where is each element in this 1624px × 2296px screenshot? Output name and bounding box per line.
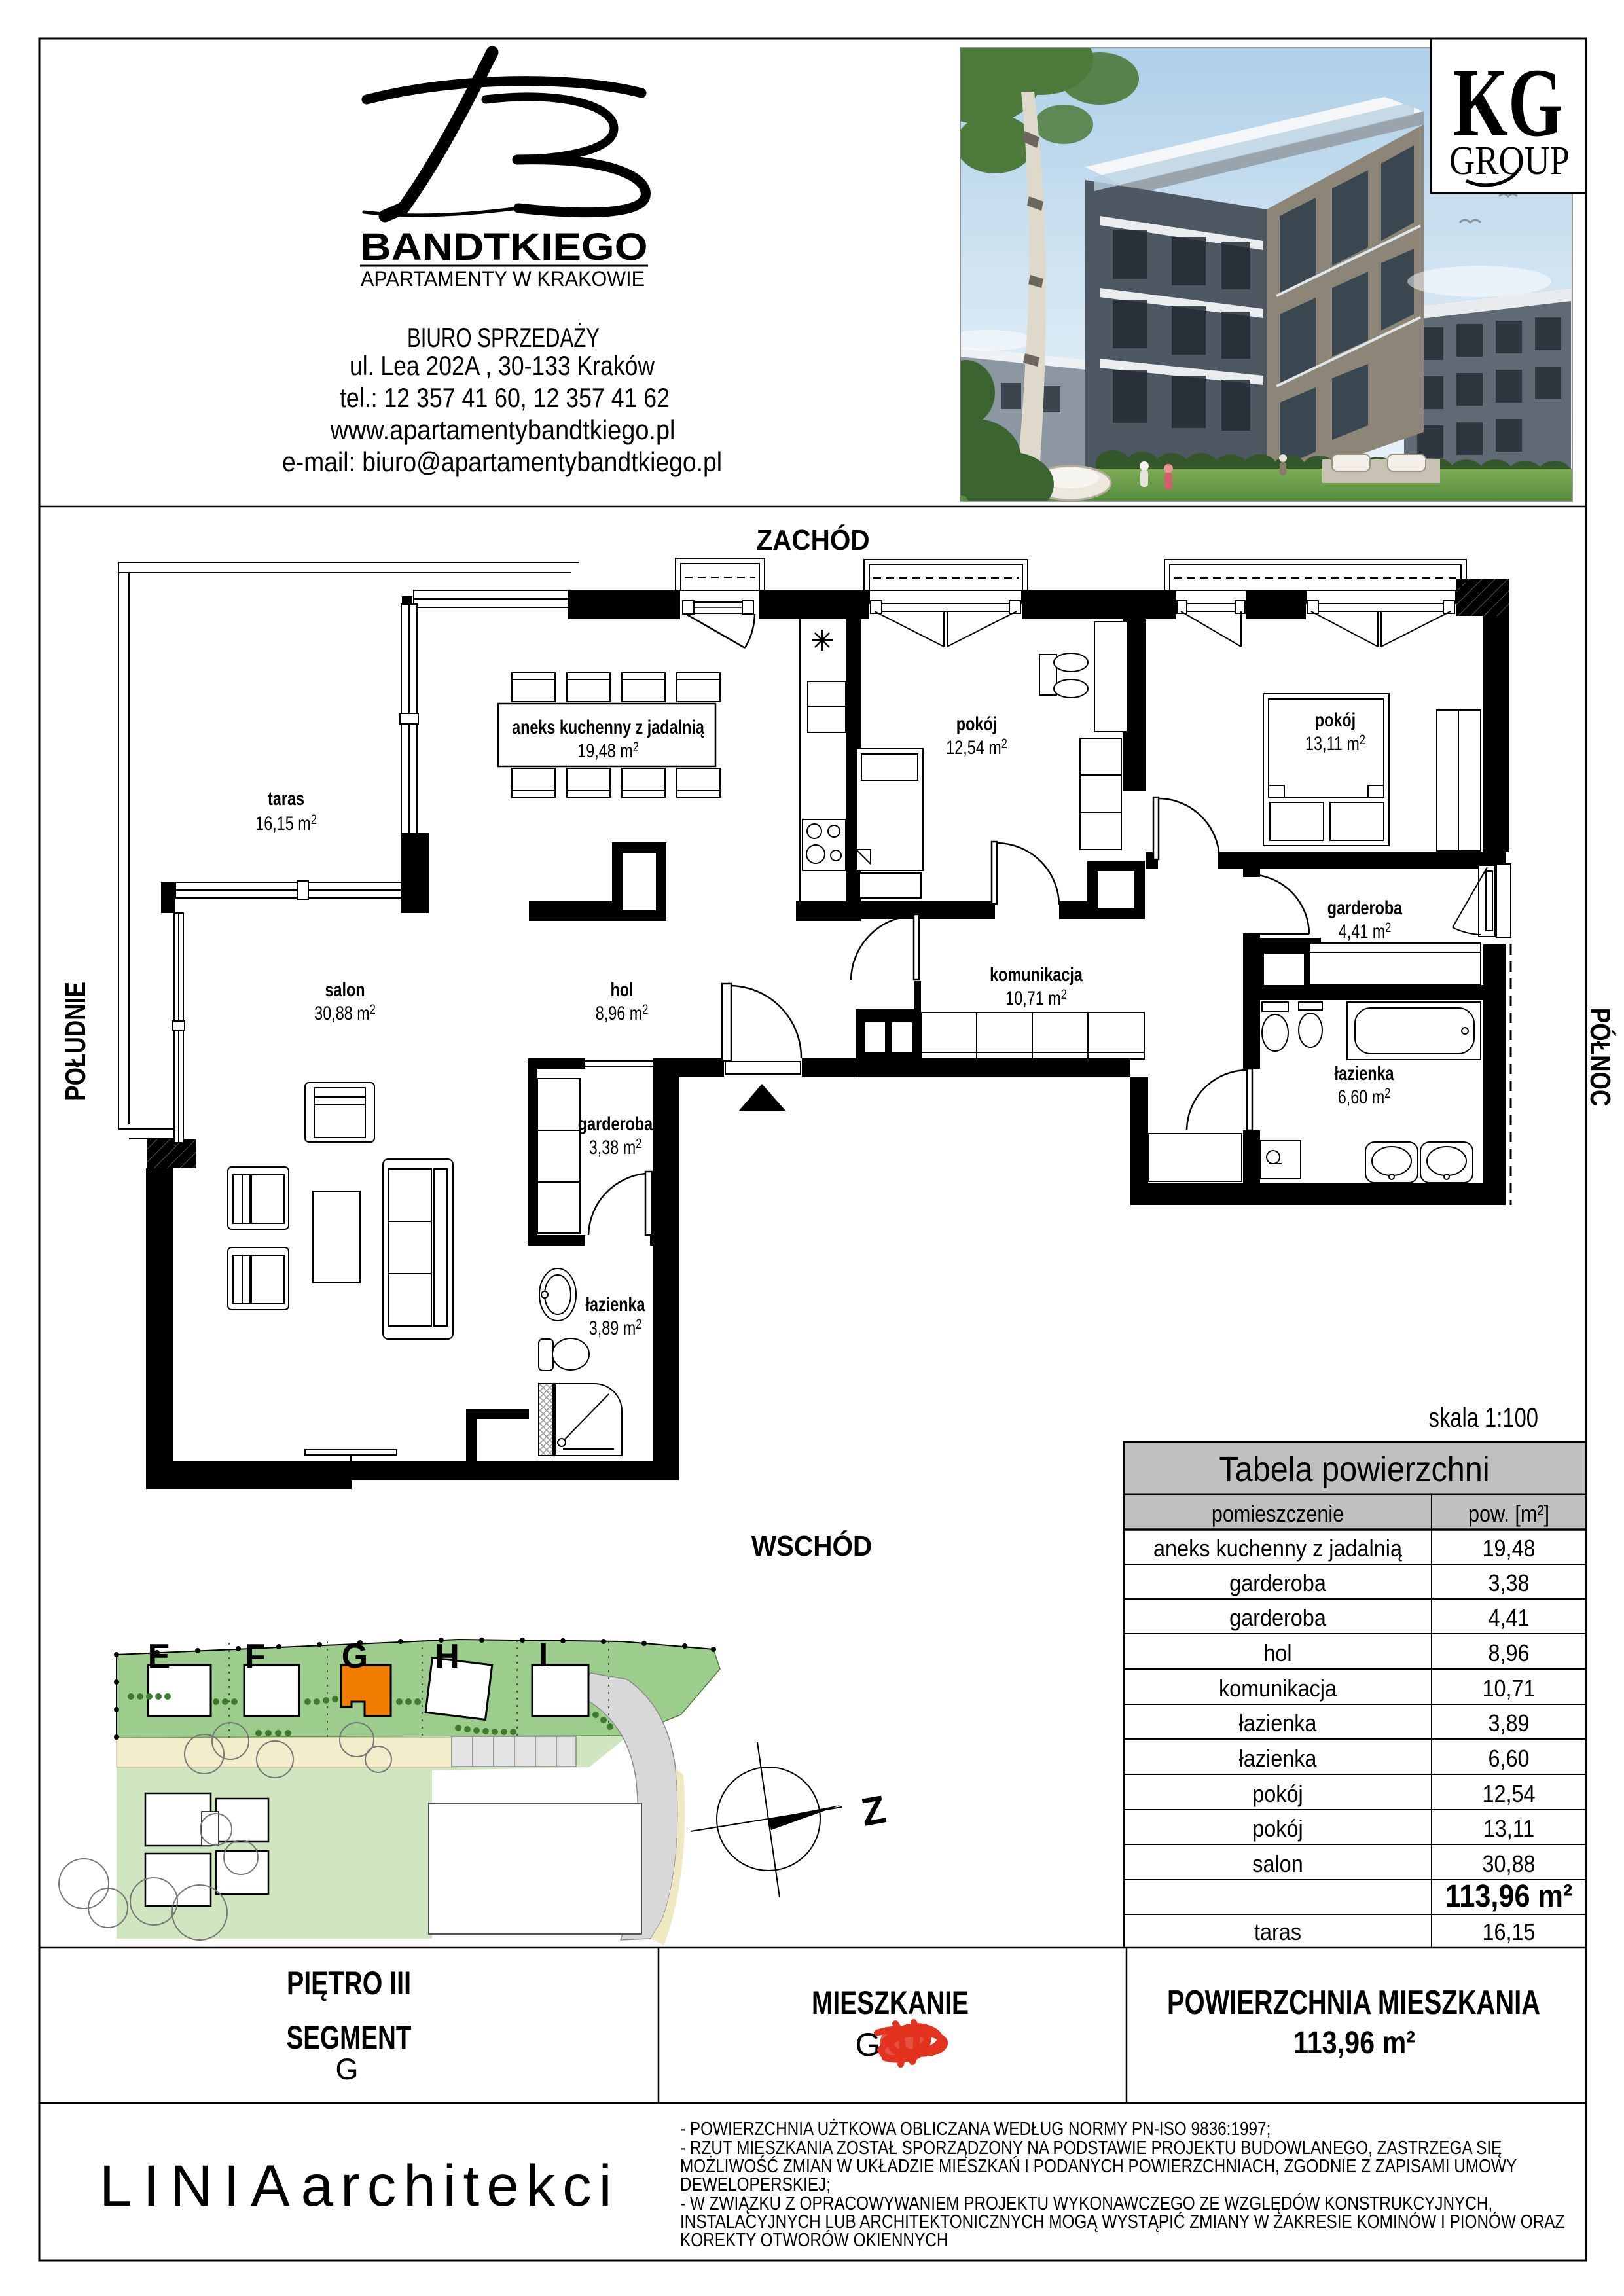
svg-text:salon: salon xyxy=(325,978,365,1000)
svg-text:30,88: 30,88 xyxy=(1482,1851,1535,1877)
svg-text:łazienka: łazienka xyxy=(1334,1062,1394,1084)
svg-text:E: E xyxy=(148,1638,171,1676)
svg-text:4,41: 4,41 xyxy=(1488,1605,1529,1631)
svg-text:łazienka: łazienka xyxy=(585,1293,645,1315)
svg-text:łazienka: łazienka xyxy=(1239,1746,1318,1772)
svg-text:113,96 m²: 113,96 m² xyxy=(1293,2026,1415,2060)
svg-text:taras: taras xyxy=(268,787,304,809)
svg-text:12,54 m2: 12,54 m2 xyxy=(946,736,1007,759)
svg-text:garderoba: garderoba xyxy=(1327,897,1403,918)
svg-text:113,96 m²: 113,96 m² xyxy=(1445,1878,1573,1914)
svg-text:13,11 m2: 13,11 m2 xyxy=(1305,732,1365,755)
svg-text:LINIAarchitekci: LINIAarchitekci xyxy=(99,2153,619,2218)
svg-text:hol: hol xyxy=(1263,1640,1291,1666)
svg-text:6,60 m2: 6,60 m2 xyxy=(1338,1085,1391,1108)
svg-text:- POWIERZCHNIA UŻTKOWA OBLICZA: - POWIERZCHNIA UŻTKOWA OBLICZANA WEDŁUG … xyxy=(680,2117,1271,2140)
svg-text:salon: salon xyxy=(1252,1851,1303,1877)
svg-text:KOREKTY OTWORÓW OKIENNYCH: KOREKTY OTWORÓW OKIENNYCH xyxy=(680,2229,948,2251)
svg-text:aneks kuchenny z jadalnią: aneks kuchenny z jadalnią xyxy=(1153,1535,1403,1562)
svg-text:I: I xyxy=(539,1636,548,1674)
svg-text:10,71: 10,71 xyxy=(1482,1676,1535,1702)
svg-text:16,15: 16,15 xyxy=(1482,1919,1535,1945)
svg-text:3,38: 3,38 xyxy=(1488,1570,1529,1596)
svg-text:SEGMENT: SEGMENT xyxy=(287,2019,412,2056)
svg-text:komunikacja: komunikacja xyxy=(990,963,1083,985)
svg-text:łazienka: łazienka xyxy=(1239,1710,1318,1736)
svg-text:garderoba: garderoba xyxy=(1229,1570,1327,1596)
svg-text:pomieszczenie: pomieszczenie xyxy=(1212,1501,1344,1528)
svg-text:16,15 m2: 16,15 m2 xyxy=(255,812,317,834)
svg-text:4,41 m2: 4,41 m2 xyxy=(1339,920,1392,942)
svg-text:3,89 m2: 3,89 m2 xyxy=(589,1316,642,1339)
svg-text:BIURO SPRZEDAŻY: BIURO SPRZEDAŻY xyxy=(407,322,600,353)
svg-text:pokój: pokój xyxy=(1315,709,1356,730)
svg-text:pow. [m²]: pow. [m²] xyxy=(1468,1501,1549,1528)
svg-text:Tabela powierzchni: Tabela powierzchni xyxy=(1219,1449,1489,1489)
svg-text:PÓŁNOC: PÓŁNOC xyxy=(1584,1008,1617,1107)
svg-text:taras: taras xyxy=(1254,1919,1301,1945)
svg-text:komunikacja: komunikacja xyxy=(1219,1676,1337,1702)
svg-text:8,96: 8,96 xyxy=(1488,1640,1529,1666)
svg-text:pokój: pokój xyxy=(1252,1816,1303,1842)
svg-text:ZACHÓD: ZACHÓD xyxy=(756,523,869,556)
svg-text:6,60: 6,60 xyxy=(1488,1746,1529,1772)
svg-text:12,54: 12,54 xyxy=(1482,1781,1535,1807)
svg-text:BANDTKIEGO: BANDTKIEGO xyxy=(361,226,648,268)
svg-text:30,88 m2: 30,88 m2 xyxy=(314,1001,376,1024)
svg-text:pokój: pokój xyxy=(956,713,997,734)
svg-text:www.apartamentybandtkiego.pl: www.apartamentybandtkiego.pl xyxy=(330,414,676,445)
svg-text:F: F xyxy=(245,1638,266,1676)
svg-text:19,48 m2: 19,48 m2 xyxy=(577,739,639,762)
svg-text:13,11: 13,11 xyxy=(1483,1816,1535,1842)
svg-text:3,89: 3,89 xyxy=(1488,1710,1529,1736)
svg-text:MIESZKANIE: MIESZKANIE xyxy=(812,1984,969,2021)
svg-text:GROUP: GROUP xyxy=(1449,139,1570,183)
svg-text:PIĘTRO III: PIĘTRO III xyxy=(287,1965,411,2001)
svg-text:pokój: pokój xyxy=(1252,1781,1303,1807)
svg-text:aneks kuchenny z jadalnią: aneks kuchenny z jadalnią xyxy=(512,716,705,738)
svg-text:garderoba: garderoba xyxy=(578,1113,653,1134)
svg-text:WSCHÓD: WSCHÓD xyxy=(751,1529,872,1562)
svg-text:ul. Lea 202A , 30-133 Kraków: ul. Lea 202A , 30-133 Kraków xyxy=(350,350,655,381)
svg-text:G: G xyxy=(335,2053,358,2086)
svg-text:e-mail: biuro@apartamentybandt: e-mail: biuro@apartamentybandtkiego.pl xyxy=(282,446,722,477)
svg-text:8,96 m2: 8,96 m2 xyxy=(596,1001,649,1024)
svg-text:10,71 m2: 10,71 m2 xyxy=(1005,986,1067,1009)
svg-text:hol: hol xyxy=(610,978,633,1000)
svg-text:19,48: 19,48 xyxy=(1482,1535,1535,1562)
svg-text:H: H xyxy=(435,1638,460,1676)
svg-text:skala 1:100: skala 1:100 xyxy=(1428,1402,1538,1433)
svg-text:POWIERZCHNIA MIESZKANIA: POWIERZCHNIA MIESZKANIA xyxy=(1167,1984,1540,2022)
svg-text:garderoba: garderoba xyxy=(1229,1605,1327,1631)
svg-text:DEWELOPERSKIEJ;: DEWELOPERSKIEJ; xyxy=(680,2174,831,2195)
svg-text:tel.: 12 357 41 60, 12 357 41: tel.: 12 357 41 60, 12 357 41 62 xyxy=(340,382,670,413)
svg-text:3,38 m2: 3,38 m2 xyxy=(589,1136,642,1158)
svg-text:POŁUDNIE: POŁUDNIE xyxy=(60,982,92,1101)
svg-text:APARTAMENTY W KRAKOWIE: APARTAMENTY W KRAKOWIE xyxy=(361,267,645,291)
